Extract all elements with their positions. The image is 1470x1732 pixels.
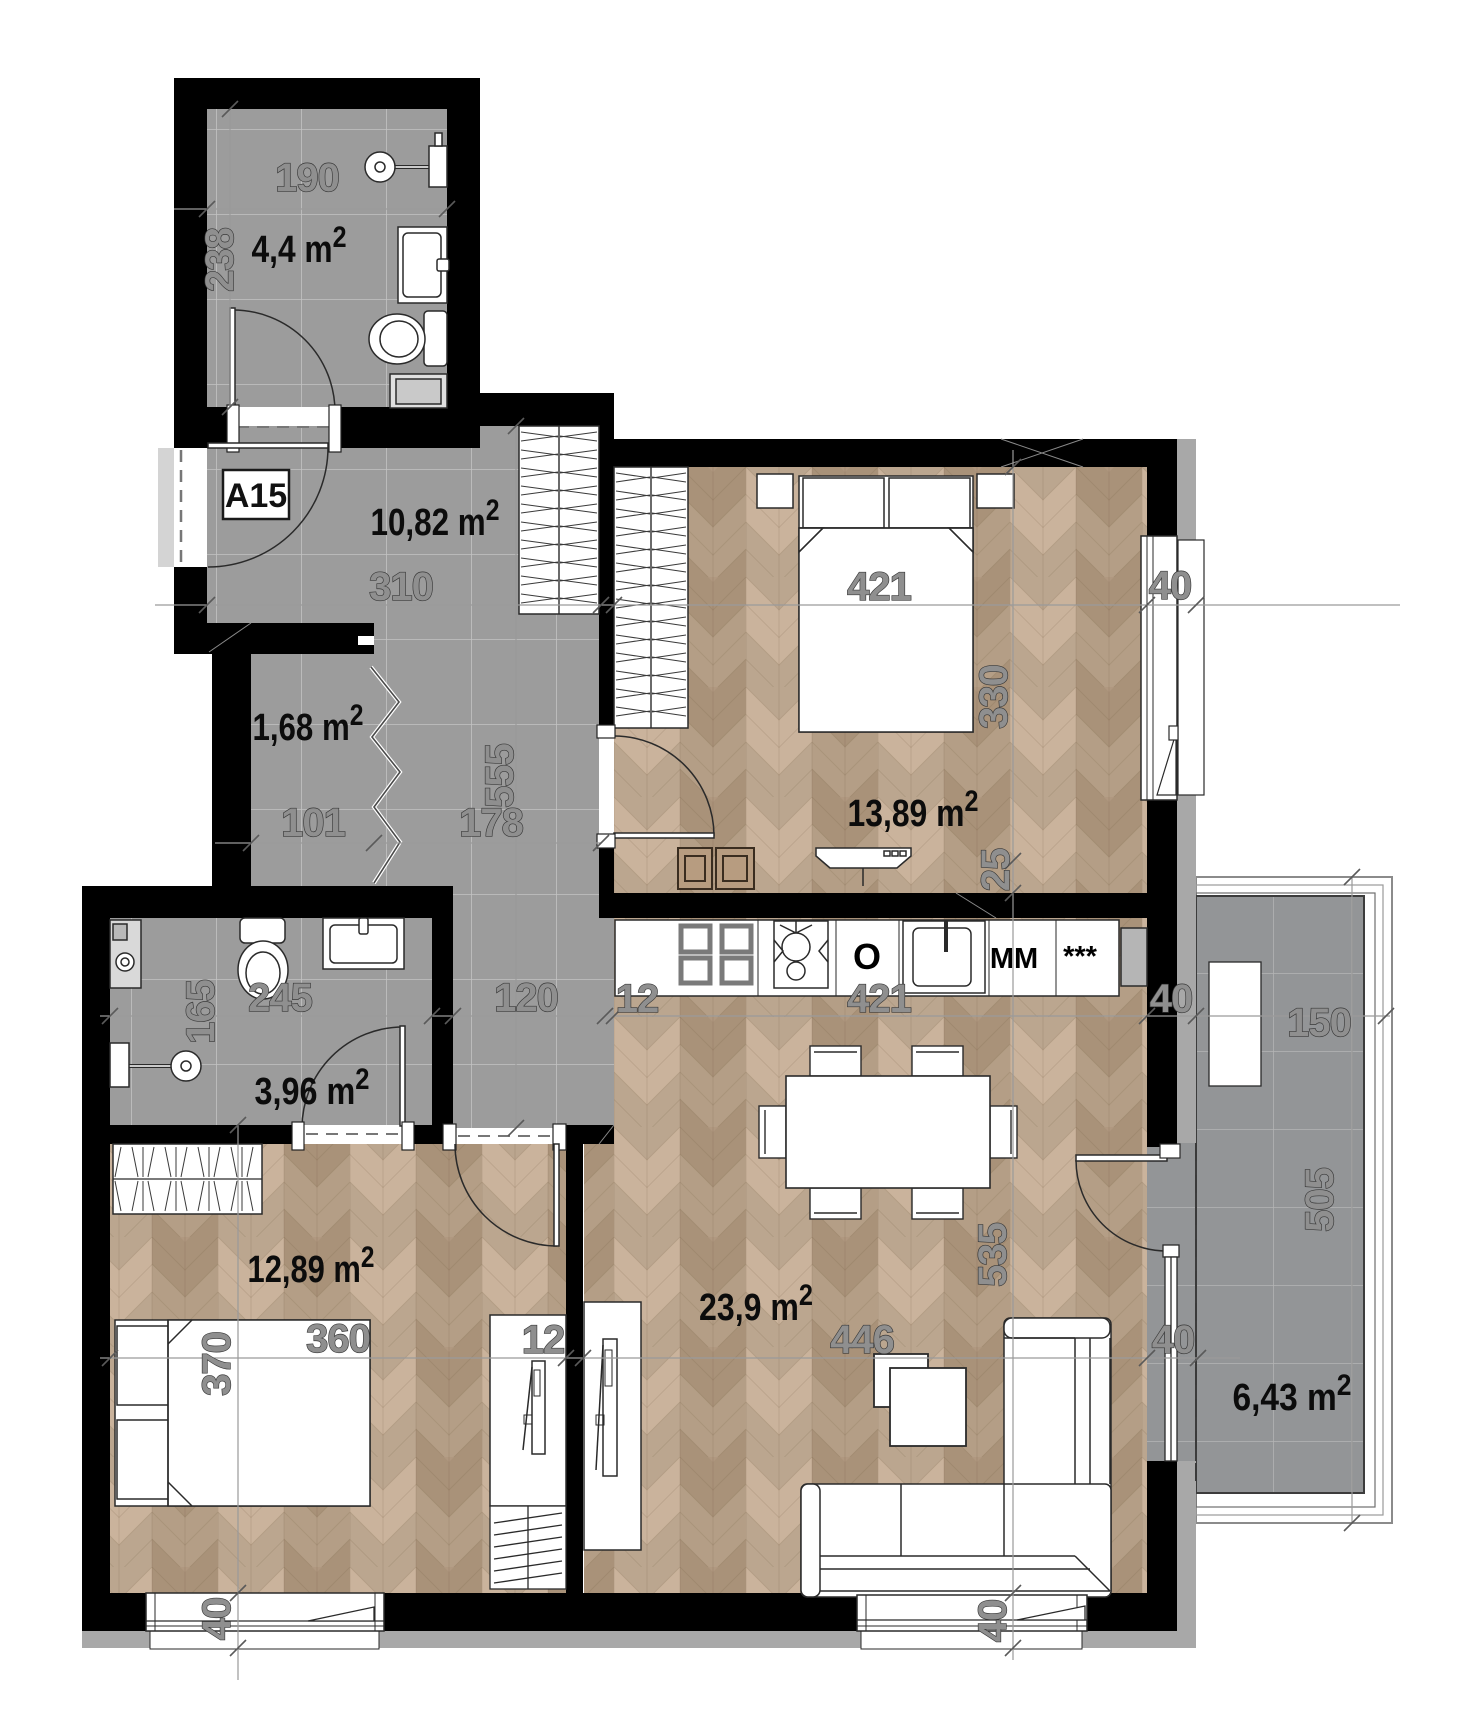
svg-text:150: 150 [1287, 1001, 1351, 1045]
svg-text:4,4 m2: 4,4 m2 [252, 221, 347, 271]
svg-text:***: *** [1063, 941, 1098, 973]
svg-text:370: 370 [195, 1332, 239, 1396]
svg-text:421: 421 [847, 977, 911, 1021]
svg-text:MM: MM [990, 943, 1038, 975]
svg-text:12,89 m2: 12,89 m2 [248, 1241, 375, 1291]
svg-text:421: 421 [847, 565, 911, 609]
svg-text:165: 165 [179, 979, 223, 1043]
svg-text:13,89 m2: 13,89 m2 [848, 785, 979, 835]
svg-text:101: 101 [281, 801, 345, 845]
svg-text:A15: A15 [225, 477, 287, 515]
svg-text:310: 310 [369, 565, 433, 609]
svg-text:40: 40 [1149, 564, 1192, 608]
svg-text:360: 360 [306, 1317, 370, 1361]
svg-text:505: 505 [1298, 1167, 1342, 1231]
svg-text:12: 12 [522, 1318, 565, 1362]
svg-text:446: 446 [830, 1318, 894, 1362]
svg-text:25: 25 [974, 848, 1018, 891]
svg-text:40: 40 [1152, 1318, 1195, 1362]
svg-text:23,9 m2: 23,9 m2 [699, 1279, 813, 1329]
svg-text:120: 120 [494, 976, 558, 1020]
svg-text:40: 40 [1150, 977, 1193, 1021]
svg-text:535: 535 [971, 1222, 1015, 1286]
svg-text:555: 555 [478, 743, 522, 807]
svg-text:238: 238 [198, 227, 242, 291]
svg-text:3,96 m2: 3,96 m2 [255, 1063, 370, 1113]
svg-text:1,68 m2: 1,68 m2 [253, 699, 364, 749]
svg-text:330: 330 [972, 665, 1016, 729]
svg-text:10,82 m2: 10,82 m2 [371, 494, 500, 544]
svg-text:245: 245 [248, 976, 312, 1020]
svg-text:40: 40 [971, 1600, 1015, 1643]
svg-text:190: 190 [275, 156, 339, 200]
svg-text:40: 40 [195, 1598, 239, 1641]
svg-text:12: 12 [616, 977, 659, 1021]
svg-text:O: O [853, 936, 881, 977]
svg-text:6,43 m2: 6,43 m2 [1233, 1369, 1352, 1419]
